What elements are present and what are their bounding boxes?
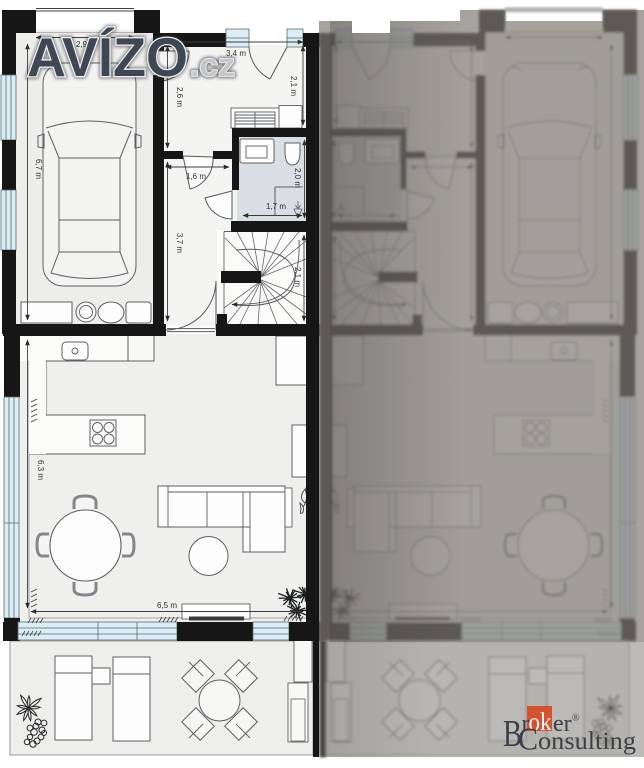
svg-text:6,5 m: 6,5 m [157,601,177,610]
svg-text:onsulting: onsulting [538,728,637,755]
svg-text:2,0 m: 2,0 m [293,168,302,188]
svg-text:2,1 m: 2,1 m [293,267,302,287]
svg-text:6,3 m: 6,3 m [36,460,45,480]
svg-text:3,7 m: 3,7 m [175,233,184,253]
svg-text:1,7 m: 1,7 m [266,202,286,211]
svg-text:C: C [518,721,538,757]
svg-text:.cz: .cz [190,47,235,83]
svg-text:AVÍZO: AVÍZO [27,26,188,88]
svg-text:®: ® [572,713,580,724]
svg-text:1,6 m: 1,6 m [186,172,206,181]
svg-text:6,7 m: 6,7 m [34,159,43,179]
svg-text:2,6 m: 2,6 m [175,87,184,107]
svg-text:2,1 m: 2,1 m [289,76,298,96]
